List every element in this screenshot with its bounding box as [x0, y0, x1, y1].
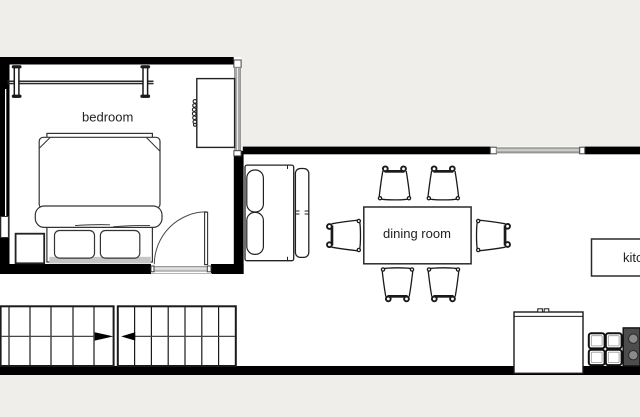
svg-text:dining room: dining room [383, 226, 451, 241]
svg-text:bedroom: bedroom [82, 110, 133, 125]
svg-text:kitchen: kitchen [623, 250, 640, 265]
